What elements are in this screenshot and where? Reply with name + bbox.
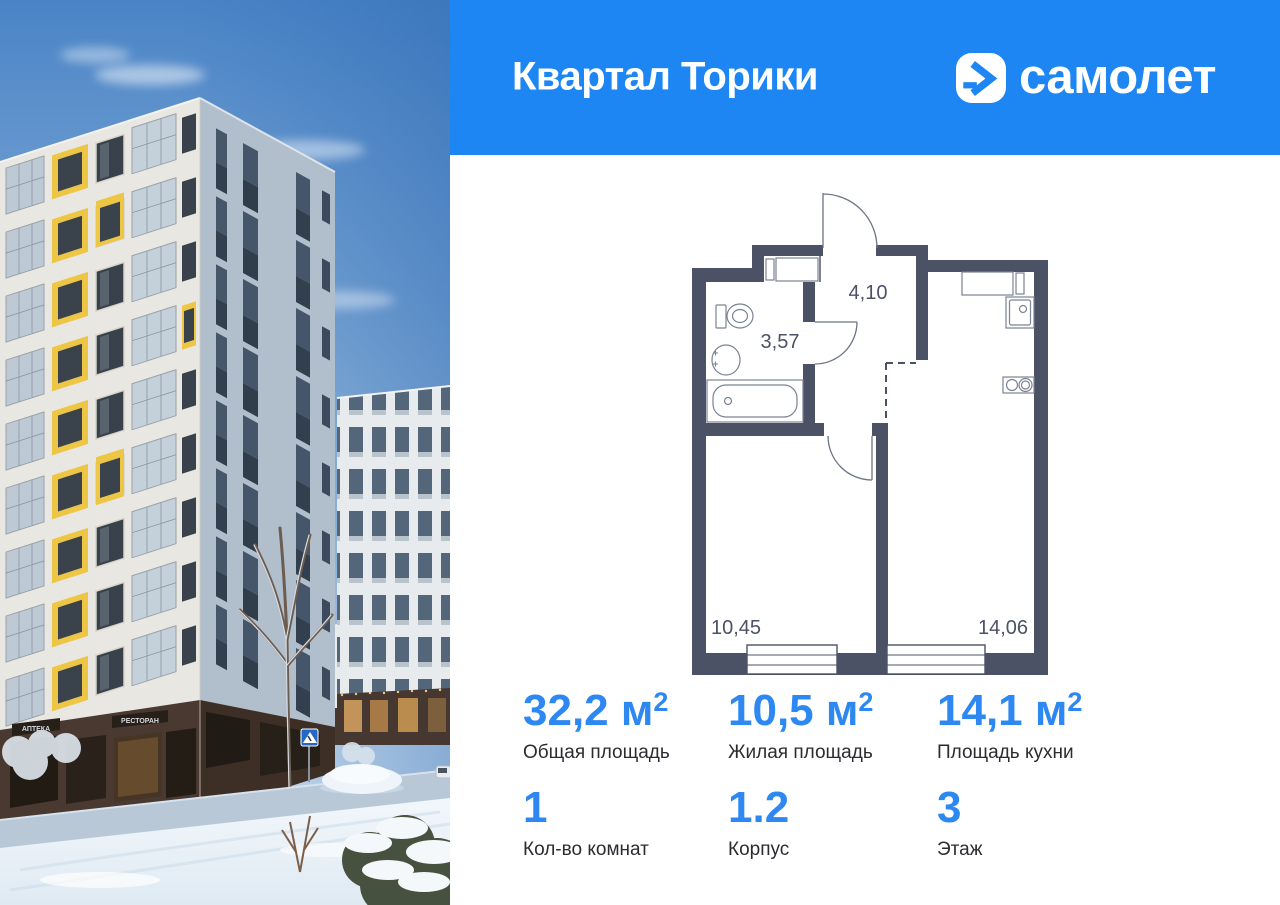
plan-stove [1003,377,1034,393]
stat-kitchen-area-sup: 2 [1067,687,1082,717]
stat-total-area-sup: 2 [653,687,668,717]
stat-building-value: 1.2 [728,786,933,830]
plan-window-kitchen [887,645,985,674]
plan-window-living [747,645,837,674]
stat-total-area: 32,2 м2 Общая площадь [523,680,728,764]
stat-kitchen-area-value: 14,1 м2 [937,680,1142,733]
stat-living-area-sup: 2 [858,687,873,717]
floor-plan: 3,57 4,10 10,45 14,06 [690,185,1050,677]
car [436,766,450,778]
stat-living-area-value: 10,5 м2 [728,680,933,733]
plan-bathroom-sink [712,345,740,375]
stat-total-area-number: 32,2 м [523,686,653,735]
stat-floor-value: 3 [937,786,1142,830]
plan-label-bathroom: 3,57 [761,331,800,353]
plan-kitchen-counter [962,272,1024,295]
storefront-sign-restaurant: РЕСТОРАН [121,718,159,725]
stat-living-area-label: Жилая площадь [728,742,933,764]
project-photo-illustration: АПТЕКА РЕСТОРАН [0,0,450,905]
stat-living-area: 10,5 м2 Жилая площадь [728,680,933,764]
plan-bathroom-door [815,322,857,364]
stat-total-area-value: 32,2 м2 [523,680,728,733]
brand-text: самолет [1019,53,1216,102]
floor-plan-drawing: 3,57 4,10 10,45 14,06 [690,185,1050,677]
plan-washing-machine [766,258,818,281]
samolet-plane-icon [956,53,1006,103]
stat-rooms: 1 Кол-во комнат [523,786,728,861]
plan-kitchen-sink [1006,297,1034,328]
plan-toilet [716,304,753,328]
stat-floor: 3 Этаж [937,786,1142,861]
project-photo: АПТЕКА РЕСТОРАН [0,0,450,905]
main-building: АПТЕКА РЕСТОРАН [0,97,335,828]
plan-bathtub [707,380,803,422]
stat-building: 1.2 Корпус [728,786,933,861]
stat-floor-label: Этаж [937,839,1142,861]
stat-building-number: 1.2 [728,783,789,832]
stat-kitchen-area: 14,1 м2 Площадь кухни [937,680,1142,764]
stat-kitchen-area-label: Площадь кухни [937,742,1142,764]
plan-living-door [828,436,872,480]
samolet-logo: самолет [956,53,1216,103]
plan-entrance-door [823,193,877,248]
apartment-card: Квартал Торики самолет [450,0,1280,905]
stat-kitchen-area-number: 14,1 м [937,686,1067,735]
stat-rooms-value: 1 [523,786,728,830]
stat-building-label: Корпус [728,839,933,861]
stat-rooms-number: 1 [523,783,547,832]
card-header: Квартал Торики самолет [450,0,1280,155]
plan-label-living: 10,45 [711,617,761,639]
background-building [337,386,450,745]
plan-kitchen-opening [886,363,916,420]
stat-total-area-label: Общая площадь [523,742,728,764]
stat-rooms-label: Кол-во комнат [523,839,728,861]
plan-label-kitchen: 14,06 [978,617,1028,639]
page-title: Квартал Торики [512,54,818,99]
stat-floor-number: 3 [937,783,961,832]
plan-label-hallway: 4,10 [849,282,888,304]
stat-living-area-number: 10,5 м [728,686,858,735]
